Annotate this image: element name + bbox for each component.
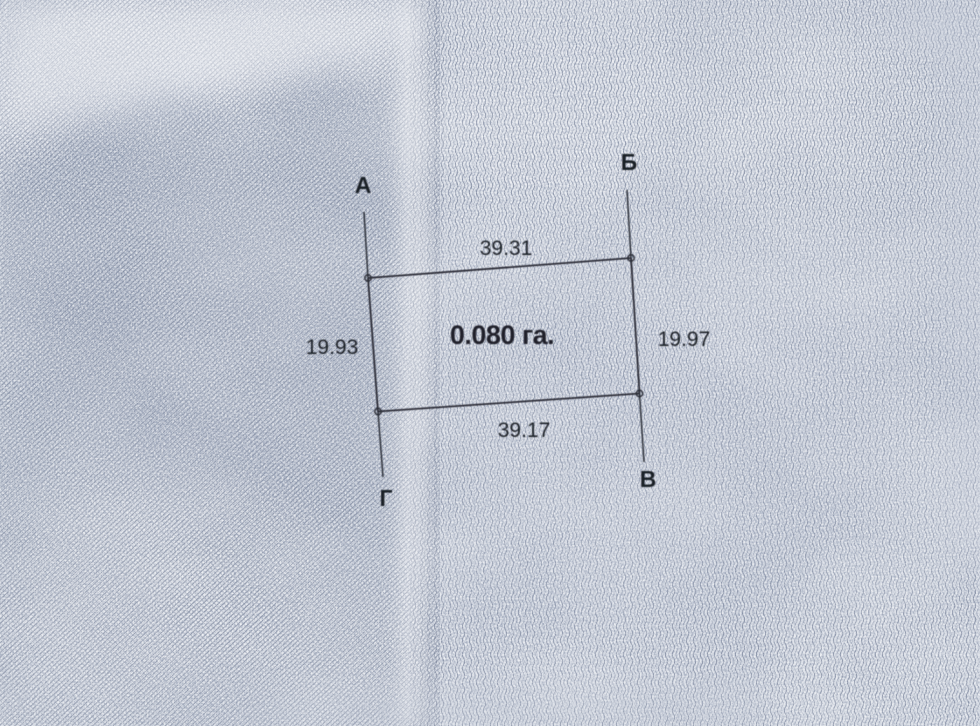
svg-text:0.080 га.: 0.080 га. xyxy=(450,320,554,350)
svg-text:39.17: 39.17 xyxy=(498,419,551,442)
svg-text:19.93: 19.93 xyxy=(306,336,359,359)
svg-text:В: В xyxy=(640,466,657,492)
svg-text:Б: Б xyxy=(621,149,638,175)
svg-text:19.97: 19.97 xyxy=(658,328,711,351)
svg-text:39.31: 39.31 xyxy=(480,237,533,260)
svg-text:А: А xyxy=(355,172,372,198)
svg-text:Г: Г xyxy=(379,485,392,511)
